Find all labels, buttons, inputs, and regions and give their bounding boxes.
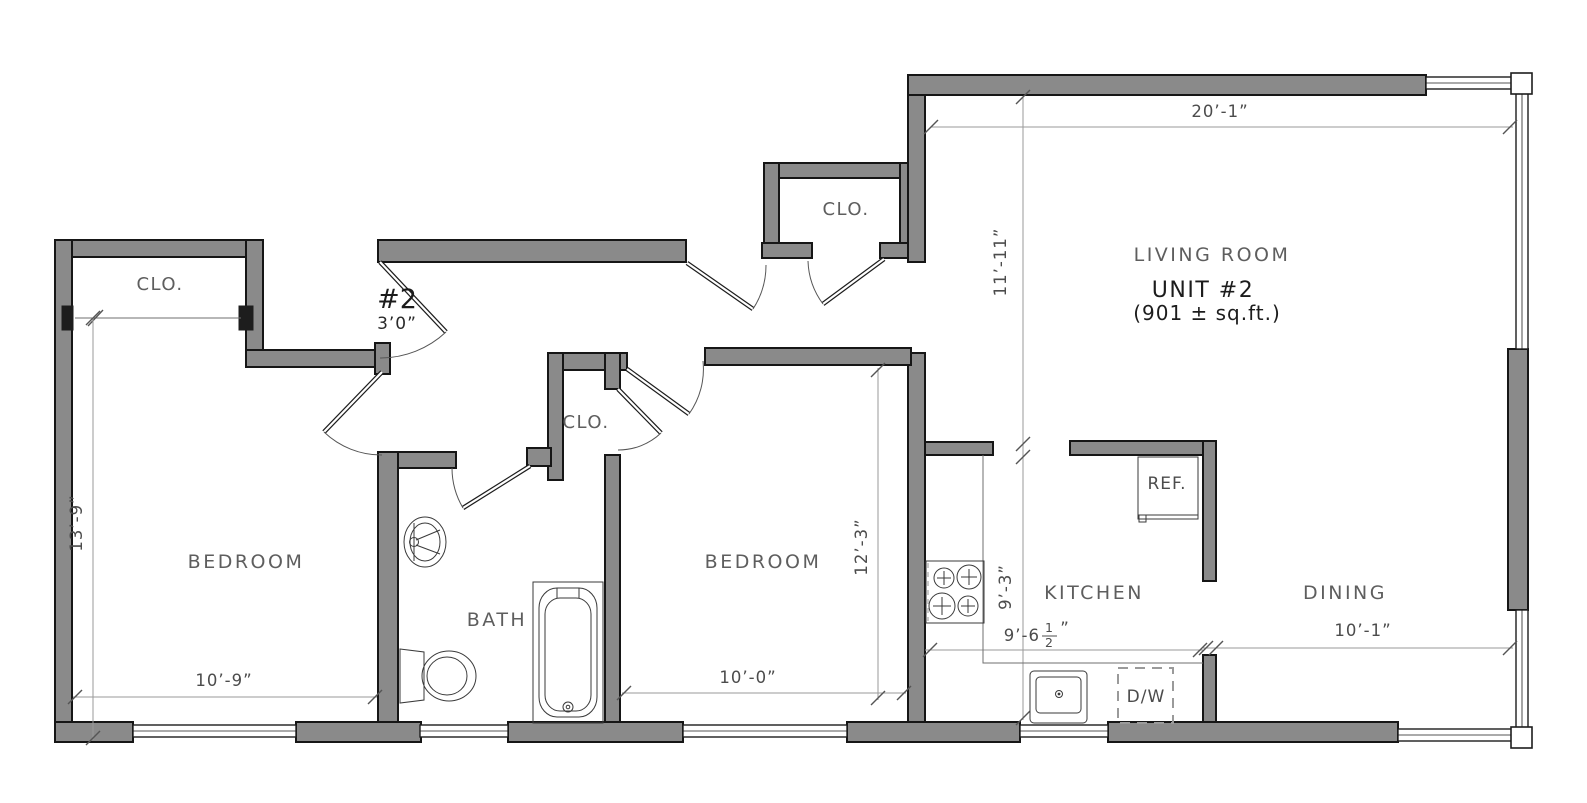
kitchen-label: KITCHEN [1044,582,1144,604]
wall-closet-entry-right [246,240,263,352]
wall-bedroom2-top [705,348,911,365]
dim-kitchen-depth: 9’-3” [996,564,1015,610]
stove [926,561,984,623]
wall-passthrough-stub [925,442,993,455]
dim-kitchen-width-denominator: 2 [1045,635,1053,650]
hall-closet-door [808,259,884,304]
bedroom1-door [324,372,382,455]
wall-entry-jamb [375,343,390,374]
wall-kitchen-dining-pier [1203,655,1216,722]
kitchen-sink [1030,671,1087,723]
bedroom2-door [627,361,703,414]
unit-label: UNIT #2 [1152,278,1254,303]
dishwasher-label: D/W [1127,687,1166,707]
dim-kitchen-width-whole: 9’-6 [1004,626,1040,645]
wall-living-top [908,75,1426,95]
closet-hall-label: CLO. [822,199,869,220]
window-dining-right [1516,610,1528,730]
floor-plan-page: D/W REF. CLO. CLO. CLO. BEDROOM BEDROOM … [0,0,1587,803]
dim-bedroom-middle-depth: 12’-3” [852,518,871,575]
wall-bath-stub [527,448,551,466]
wall-bottom-left-corner [55,722,133,742]
entry-door-number: #2 [377,284,417,315]
bedroom-middle-label: BEDROOM [705,551,822,573]
window-bath [420,725,508,737]
window-bedroom1 [133,725,296,737]
wall-right-pier [1508,349,1528,610]
bath-sink [404,517,446,567]
dim-living-depth: 11’-11” [991,228,1010,297]
entry-door-width: 3’0” [377,314,417,334]
refrigerator: REF. [1138,457,1198,522]
dimension-lines [68,90,1517,745]
floor-plan-drawing: D/W REF. CLO. CLO. CLO. BEDROOM BEDROOM … [0,0,1587,803]
dimension-ticks [68,90,1517,745]
wall-living-left [908,77,925,262]
wall-bottom-pier-3 [847,722,1020,742]
dim-bedroom-left-width: 10’-9” [195,671,252,690]
dim-kitchen-width: 9’-6 1 2 ” [1004,619,1070,650]
area-label: (901 ± sq.ft.) [1133,301,1281,325]
window-dining-bottom [1398,729,1516,741]
wall-bedroom2-right [908,353,925,725]
bathtub [533,582,603,723]
wall-bath-top [390,452,456,468]
closet-entry-label: CLO. [136,274,183,295]
dining-label: DINING [1303,582,1387,604]
window-living-right [1516,90,1528,349]
dim-kitchen-width-numerator: 1 [1045,620,1053,635]
wall-bedroom1-bath [378,452,398,725]
bath-door [452,466,530,508]
wall-closet-hall-top [764,163,914,178]
dim-kitchen-width-suffix: ” [1060,619,1070,638]
wall-closet-entry-top [55,240,263,257]
room-labels: CLO. CLO. CLO. BEDROOM BEDROOM BATH KITC… [136,199,1387,631]
closet-bypass-door [75,310,241,326]
dim-dining-width: 10’-1” [1334,621,1391,640]
wall-bottom-pier-1 [296,722,421,742]
wall-closet-hall-left-stub [762,243,812,258]
wall-bath-bedroom2 [605,455,620,725]
bedroom-closet-door [618,389,661,450]
living-room-label: LIVING ROOM [1134,244,1291,266]
wall-vestibule-bottom [246,350,378,367]
window-bedroom2 [683,725,847,737]
wall-closet-bed-right [605,353,620,389]
dim-bedroom-left-depth: 13’-9” [67,494,86,551]
wall-bottom-pier-2 [508,722,683,742]
window-living-top [1426,77,1516,89]
toilet [400,649,476,703]
closet-bedroom-label: CLO. [562,412,609,433]
wall-kitchen-top [1070,441,1216,455]
entry-door-labels: #2 3’0” [377,284,417,334]
dim-bedroom-middle-width: 10’-0” [719,668,776,687]
wall-kitchen-right [1203,441,1216,581]
refrigerator-label: REF. [1147,474,1186,494]
walls [55,75,1528,742]
window-kitchen [1020,725,1108,737]
closet-entry-jamb-right [239,306,253,330]
window-corner-top-right [1511,73,1532,94]
dimension-labels: 20’-1” 11’-11” 13’-9” 10’-9” 12’-3” 10’-… [67,102,1392,690]
closet-entry-jamb-left [62,306,73,330]
dim-living-width: 20’-1” [1191,102,1248,121]
bedroom-left-label: BEDROOM [188,551,305,573]
wall-bottom-right [1108,722,1398,742]
hall-living-door [687,263,766,309]
dishwasher: D/W [1118,668,1173,723]
window-corner-bottom-right [1511,727,1532,748]
bath-label: BATH [467,609,527,631]
doors [75,259,884,508]
wall-hall-top [378,240,686,262]
